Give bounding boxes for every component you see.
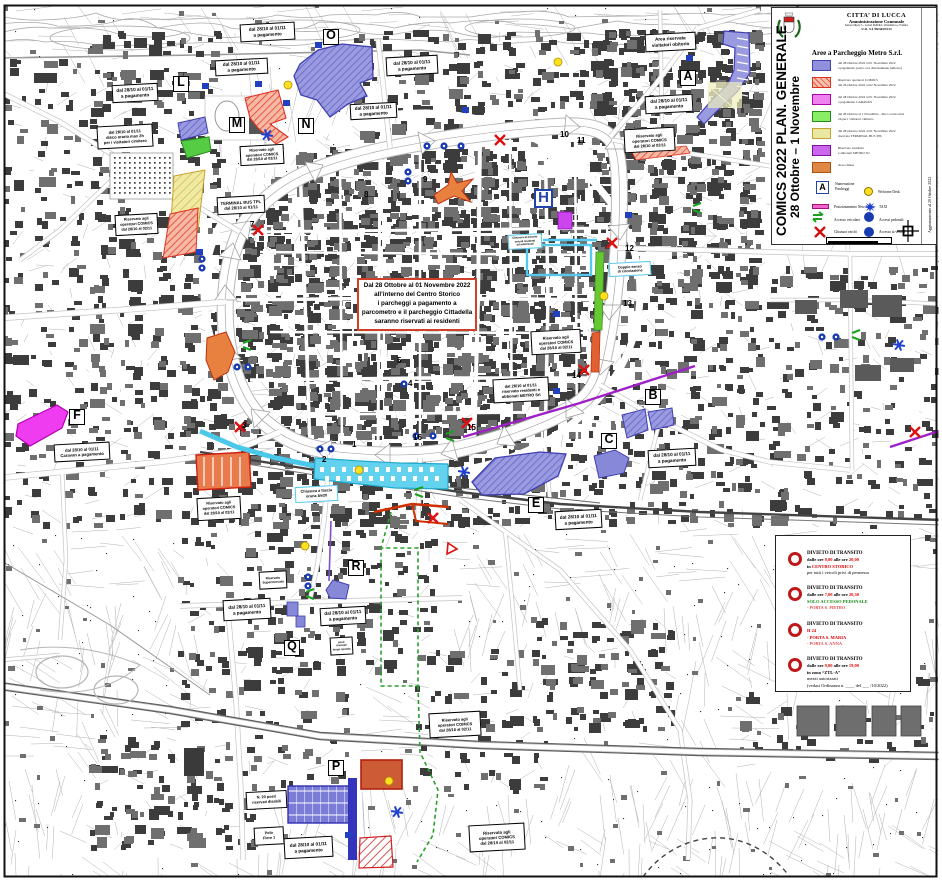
svg-text:5: 5 [397,356,402,365]
svg-text:14: 14 [572,371,581,380]
svg-text:11: 11 [577,136,586,145]
svg-text:10: 10 [560,130,569,139]
svg-text:3: 3 [242,421,247,430]
svg-text:7: 7 [250,220,255,229]
svg-text:4: 4 [408,379,413,388]
svg-text:1: 1 [352,440,357,449]
svg-text:12: 12 [625,244,634,253]
svg-text:9: 9 [423,175,428,184]
svg-text:13: 13 [623,299,632,308]
svg-text:16: 16 [413,433,422,442]
svg-text:8: 8 [364,190,369,199]
svg-text:2: 2 [322,455,327,464]
svg-text:15: 15 [467,423,476,432]
